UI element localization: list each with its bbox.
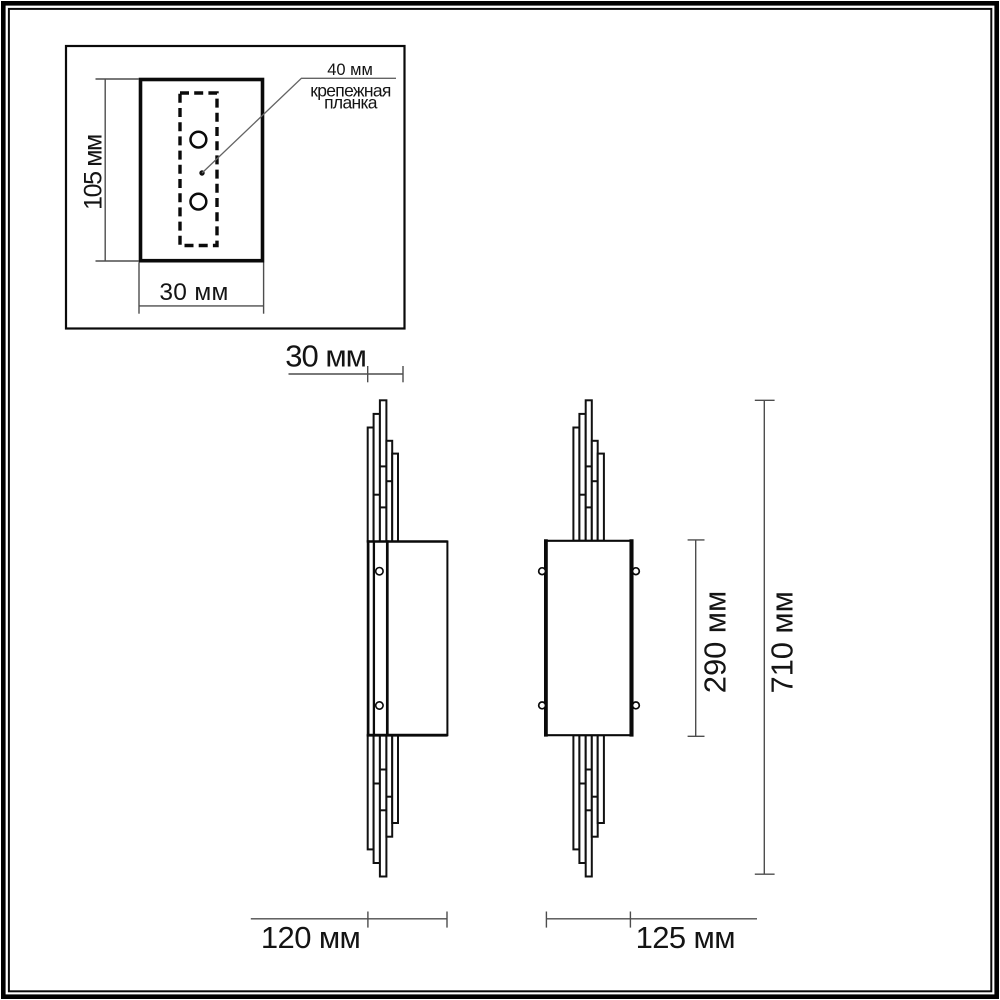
svg-text:30 мм: 30 мм [285,339,366,374]
svg-text:105 мм: 105 мм [79,135,107,210]
svg-text:290 мм: 290 мм [697,591,732,693]
svg-text:125 мм: 125 мм [636,920,735,955]
svg-text:710 мм: 710 мм [765,591,800,693]
svg-text:планка: планка [324,92,378,112]
svg-text:40 мм: 40 мм [327,61,373,79]
svg-text:120 мм: 120 мм [261,920,360,955]
svg-text:30 мм: 30 мм [159,279,228,306]
